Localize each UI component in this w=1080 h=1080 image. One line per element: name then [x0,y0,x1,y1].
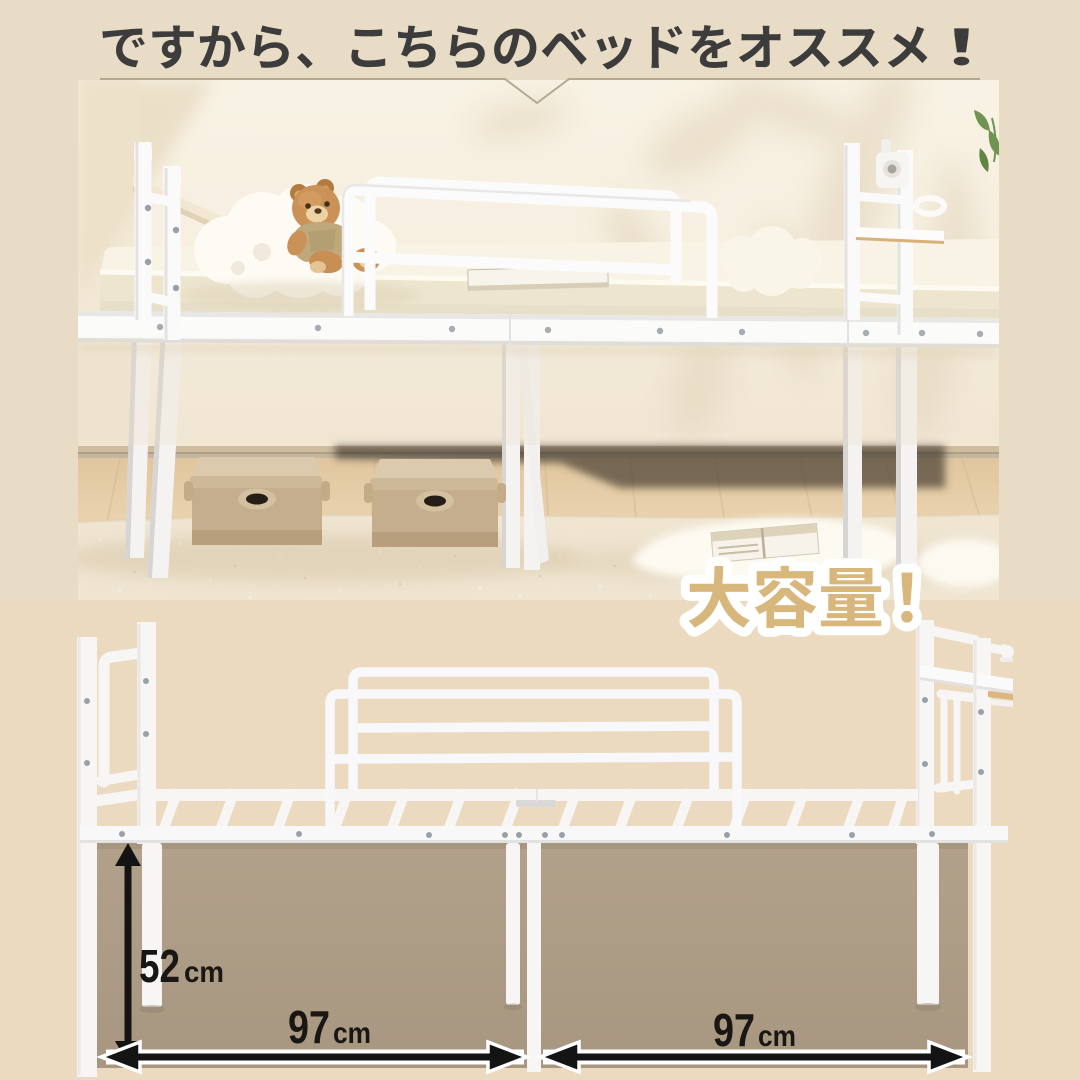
svg-text:cm: cm [333,1017,371,1050]
svg-text:97: 97 [288,1001,330,1053]
svg-text:52: 52 [139,940,180,992]
svg-text:cm: cm [184,956,224,989]
svg-text:cm: cm [758,1020,796,1053]
svg-text:97: 97 [713,1004,755,1056]
